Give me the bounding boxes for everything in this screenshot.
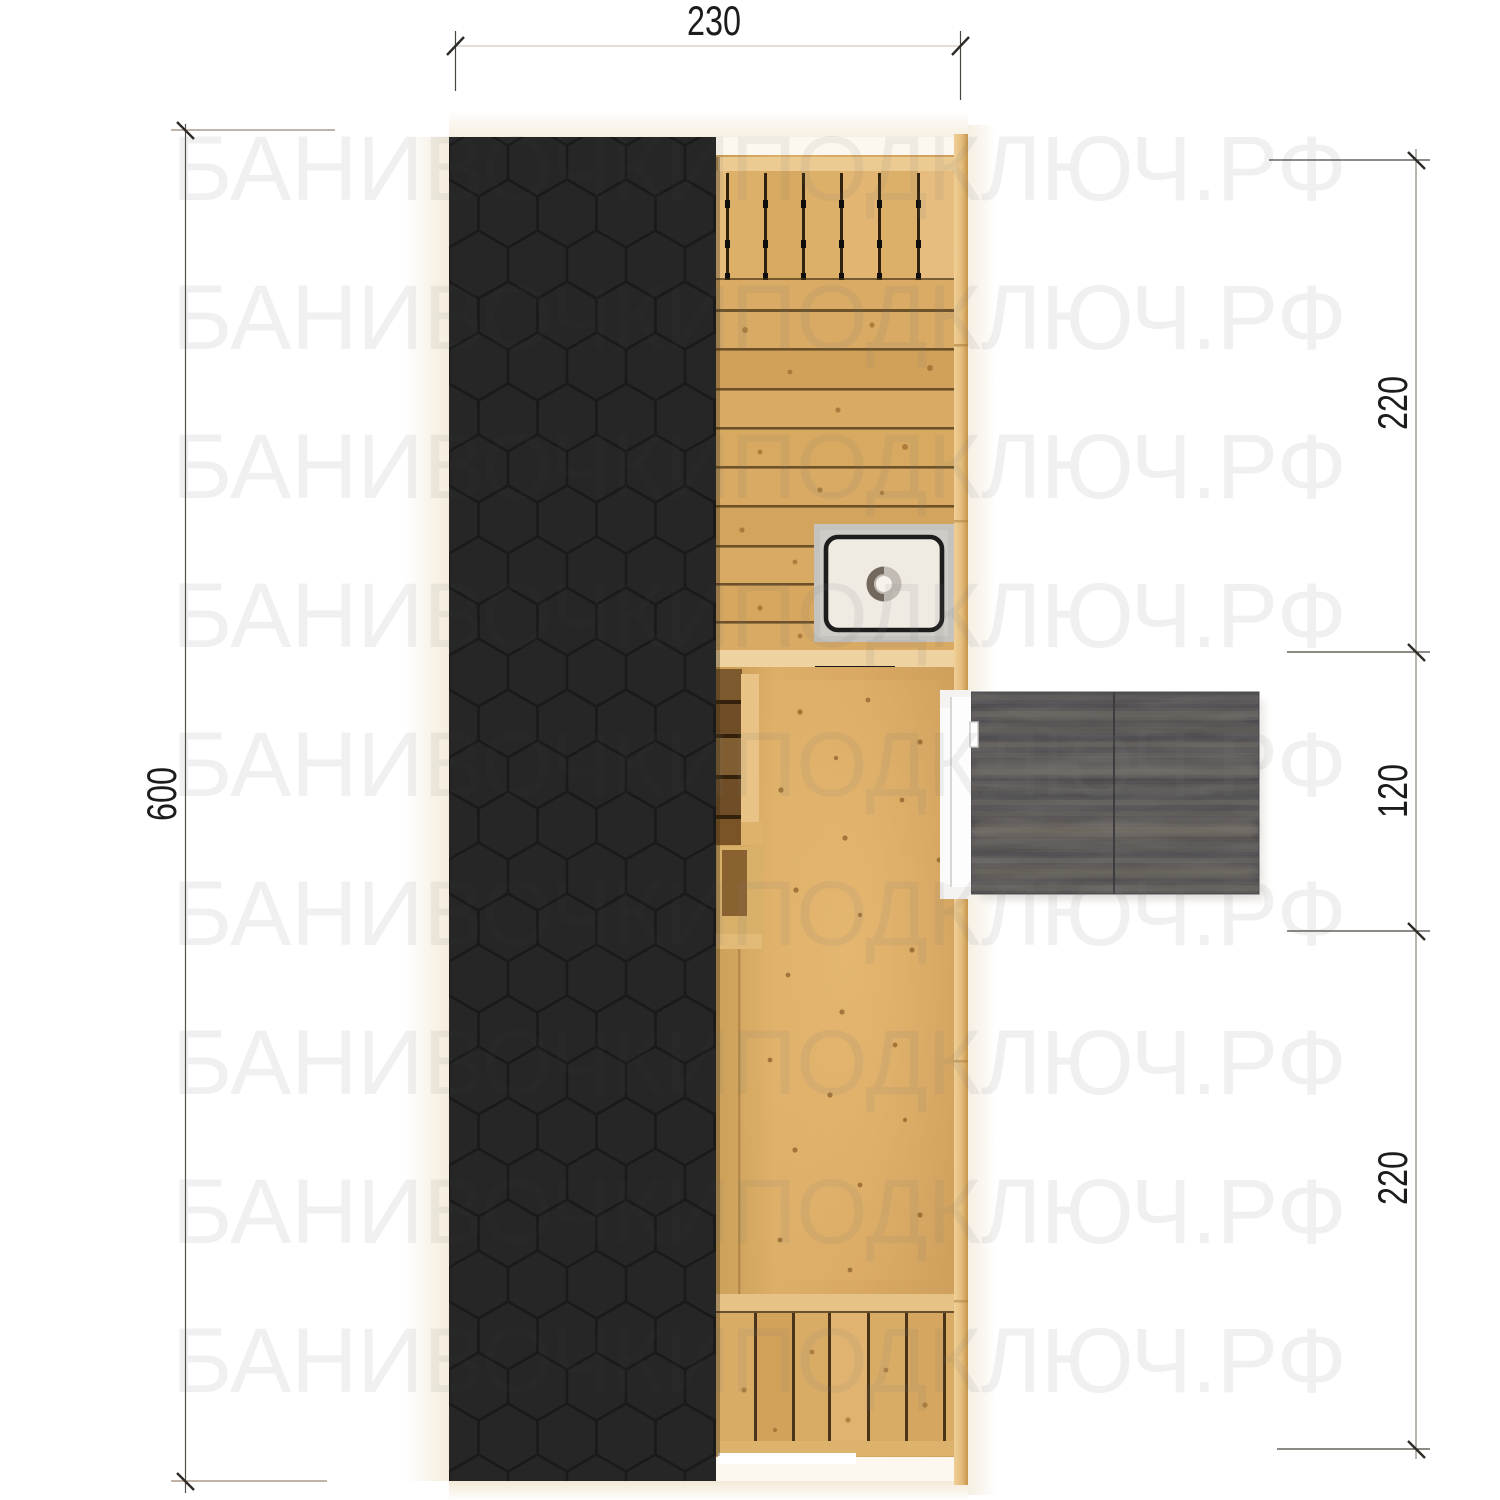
svg-text:БАНИВОЧКИПОДКЛЮЧ.РФ: БАНИВОЧКИПОДКЛЮЧ.РФ xyxy=(172,1161,1346,1263)
svg-text:БАНИВОЧКИПОДКЛЮЧ.РФ: БАНИВОЧКИПОДКЛЮЧ.РФ xyxy=(172,1012,1346,1114)
svg-text:БАНИВОЧКИПОДКЛЮЧ.РФ: БАНИВОЧКИПОДКЛЮЧ.РФ xyxy=(172,863,1346,965)
svg-text:БАНИВОЧКИПОДКЛЮЧ.РФ: БАНИВОЧКИПОДКЛЮЧ.РФ xyxy=(172,416,1346,518)
svg-text:120: 120 xyxy=(1369,764,1416,818)
svg-text:600: 600 xyxy=(138,767,185,821)
svg-text:БАНИВОЧКИПОДКЛЮЧ.РФ: БАНИВОЧКИПОДКЛЮЧ.РФ xyxy=(172,565,1346,667)
svg-text:230: 230 xyxy=(687,0,741,44)
svg-text:220: 220 xyxy=(1369,376,1416,430)
svg-text:БАНИВОЧКИПОДКЛЮЧ.РФ: БАНИВОЧКИПОДКЛЮЧ.РФ xyxy=(172,267,1346,369)
svg-text:220: 220 xyxy=(1369,1151,1416,1205)
svg-text:БАНИВОЧКИПОДКЛЮЧ.РФ: БАНИВОЧКИПОДКЛЮЧ.РФ xyxy=(172,1310,1346,1412)
svg-text:БАНИВОЧКИПОДКЛЮЧ.РФ: БАНИВОЧКИПОДКЛЮЧ.РФ xyxy=(172,118,1346,220)
svg-text:БАНИВОЧКИПОДКЛЮЧ.РФ: БАНИВОЧКИПОДКЛЮЧ.РФ xyxy=(172,714,1346,816)
